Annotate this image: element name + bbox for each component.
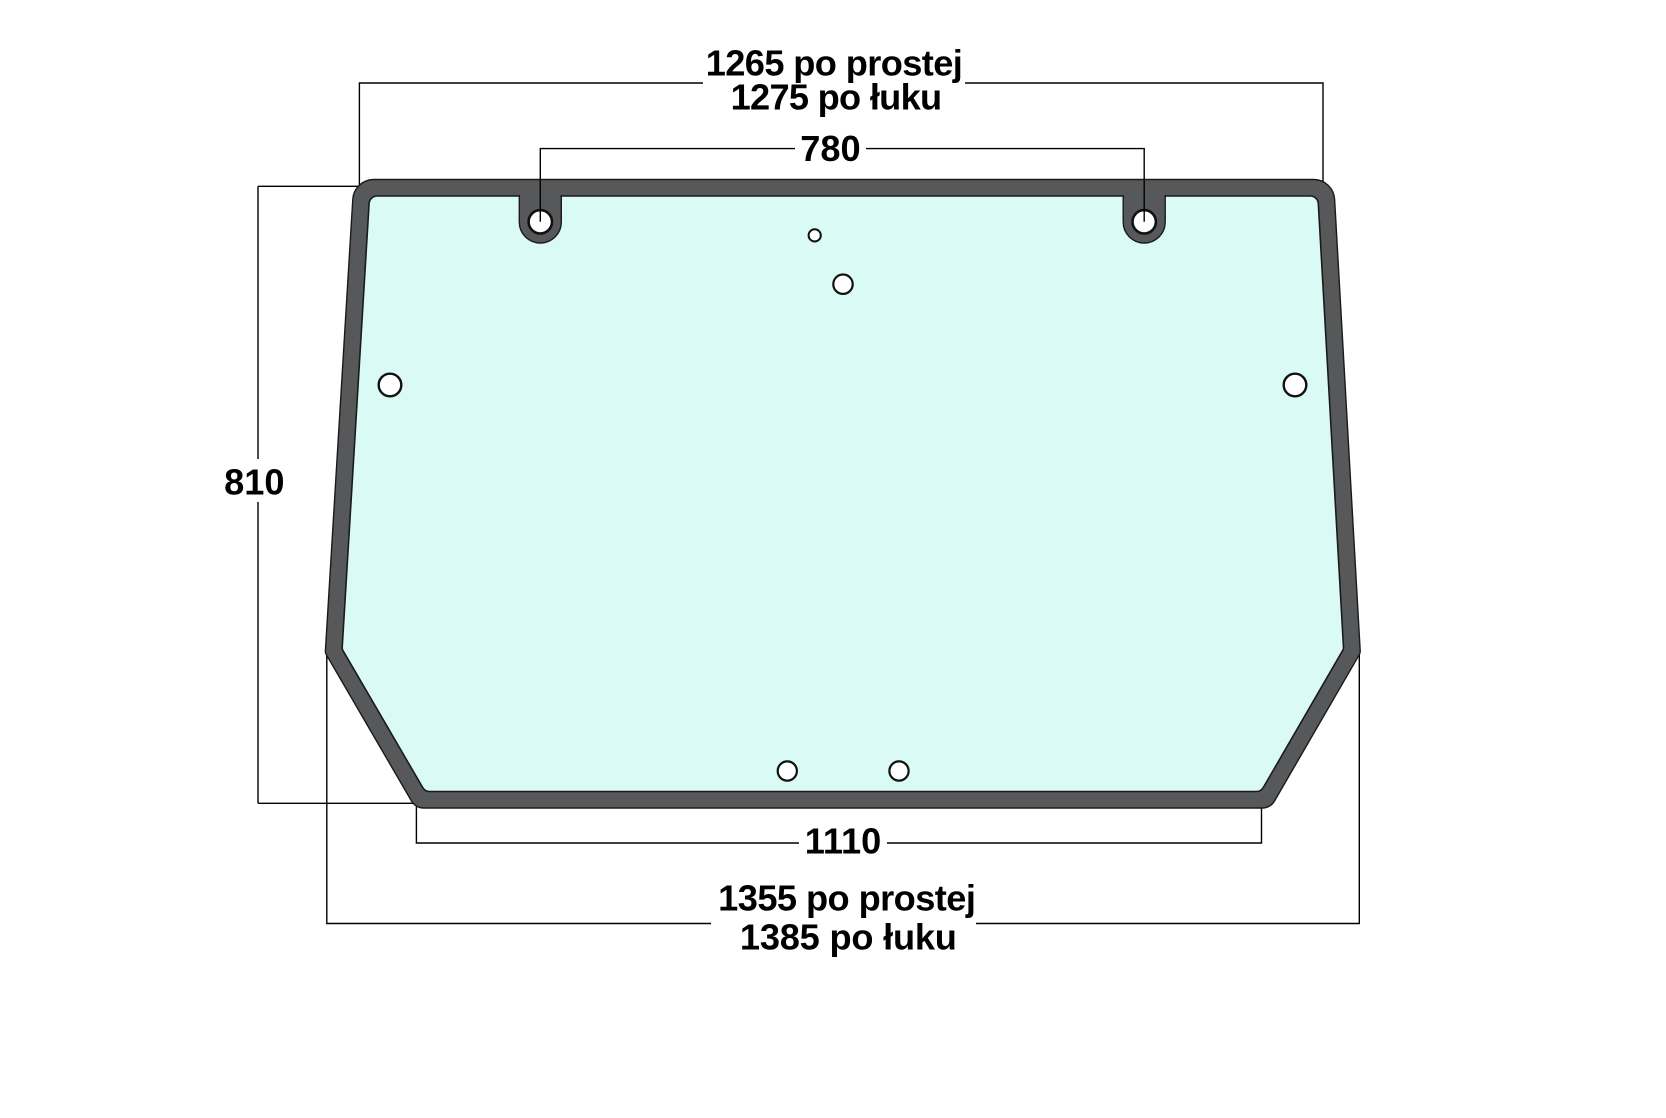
svg-text:1110: 1110 xyxy=(805,821,882,862)
svg-text:810: 810 xyxy=(224,461,284,502)
svg-text:780: 780 xyxy=(800,128,860,169)
svg-text:1385 po łuku: 1385 po łuku xyxy=(740,916,957,957)
svg-text:1275 po łuku: 1275 po łuku xyxy=(731,77,942,118)
svg-text:1355 po prostej: 1355 po prostej xyxy=(718,878,975,919)
